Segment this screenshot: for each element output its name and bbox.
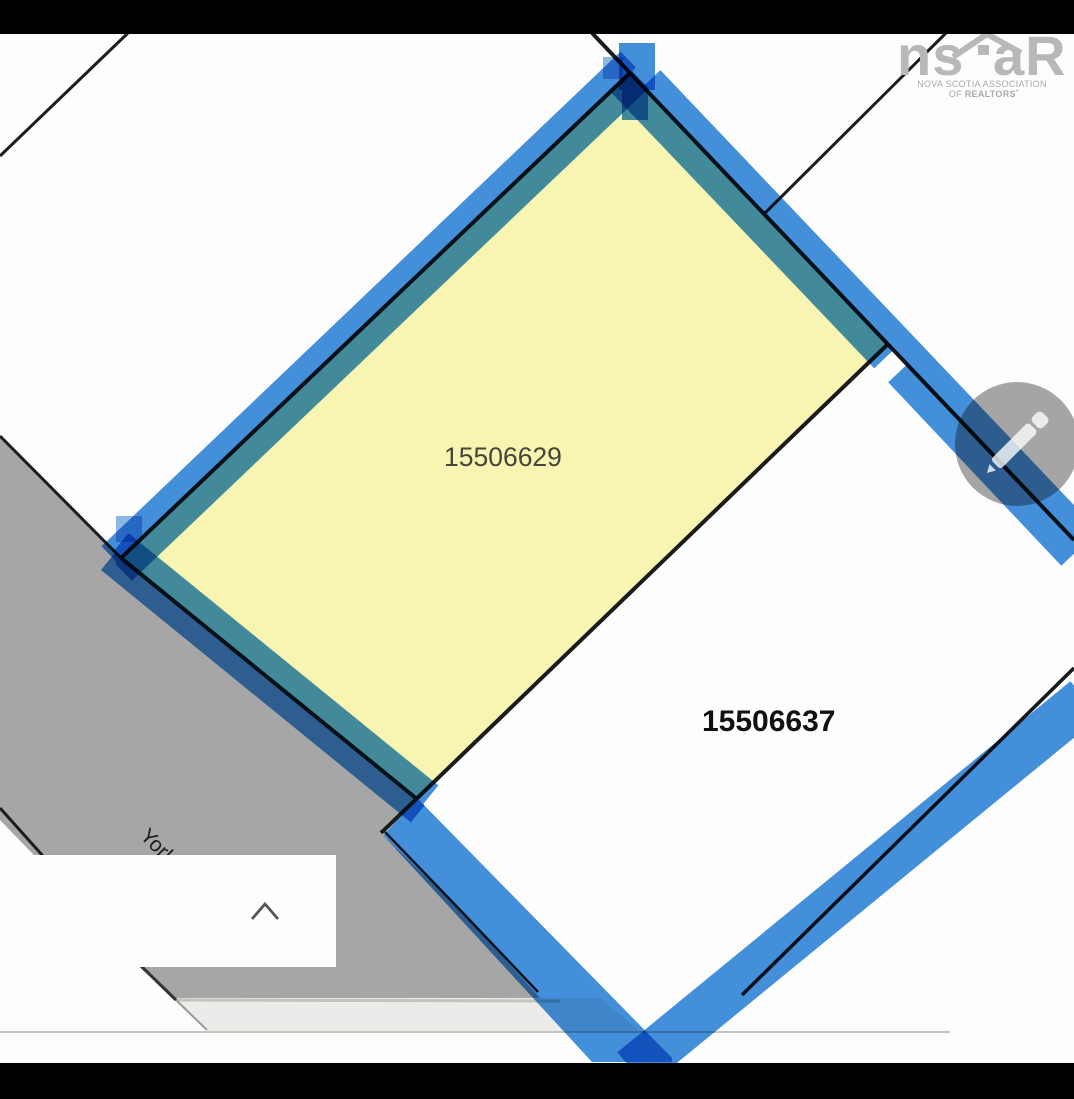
svg-text:NOVA SCOTIA ASSOCIATION: NOVA SCOTIA ASSOCIATION xyxy=(917,79,1047,89)
svg-text:OF REALTORS˚: OF REALTORS˚ xyxy=(949,89,1019,99)
svg-text:15506637: 15506637 xyxy=(702,705,835,738)
svg-text:15506629: 15506629 xyxy=(444,442,562,472)
